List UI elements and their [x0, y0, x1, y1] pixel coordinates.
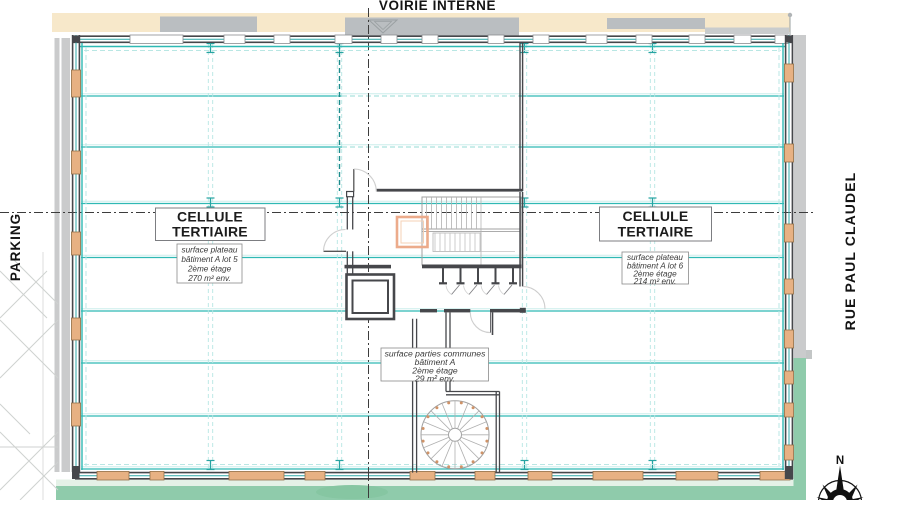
- svg-text:2ème étage: 2ème étage: [187, 265, 232, 274]
- svg-text:CELLULE: CELLULE: [623, 208, 689, 224]
- svg-text:TERTIAIRE: TERTIAIRE: [618, 224, 694, 240]
- svg-text:VOIRIE INTERNE: VOIRIE INTERNE: [379, 0, 496, 13]
- svg-text:PARKING: PARKING: [8, 213, 23, 281]
- svg-text:TERTIAIRE: TERTIAIRE: [172, 224, 248, 240]
- svg-text:surface plateau: surface plateau: [182, 246, 238, 255]
- svg-text:N: N: [836, 455, 844, 467]
- svg-text:29 m² env.: 29 m² env.: [414, 374, 455, 384]
- svg-text:270 m² env.: 270 m² env.: [187, 274, 231, 283]
- svg-text:RUE PAUL CLAUDEL: RUE PAUL CLAUDEL: [842, 172, 858, 331]
- svg-text:214 m² env.: 214 m² env.: [633, 277, 677, 286]
- svg-text:CELLULE: CELLULE: [177, 209, 243, 225]
- svg-text:bâtiment A lot 5: bâtiment A lot 5: [181, 255, 238, 264]
